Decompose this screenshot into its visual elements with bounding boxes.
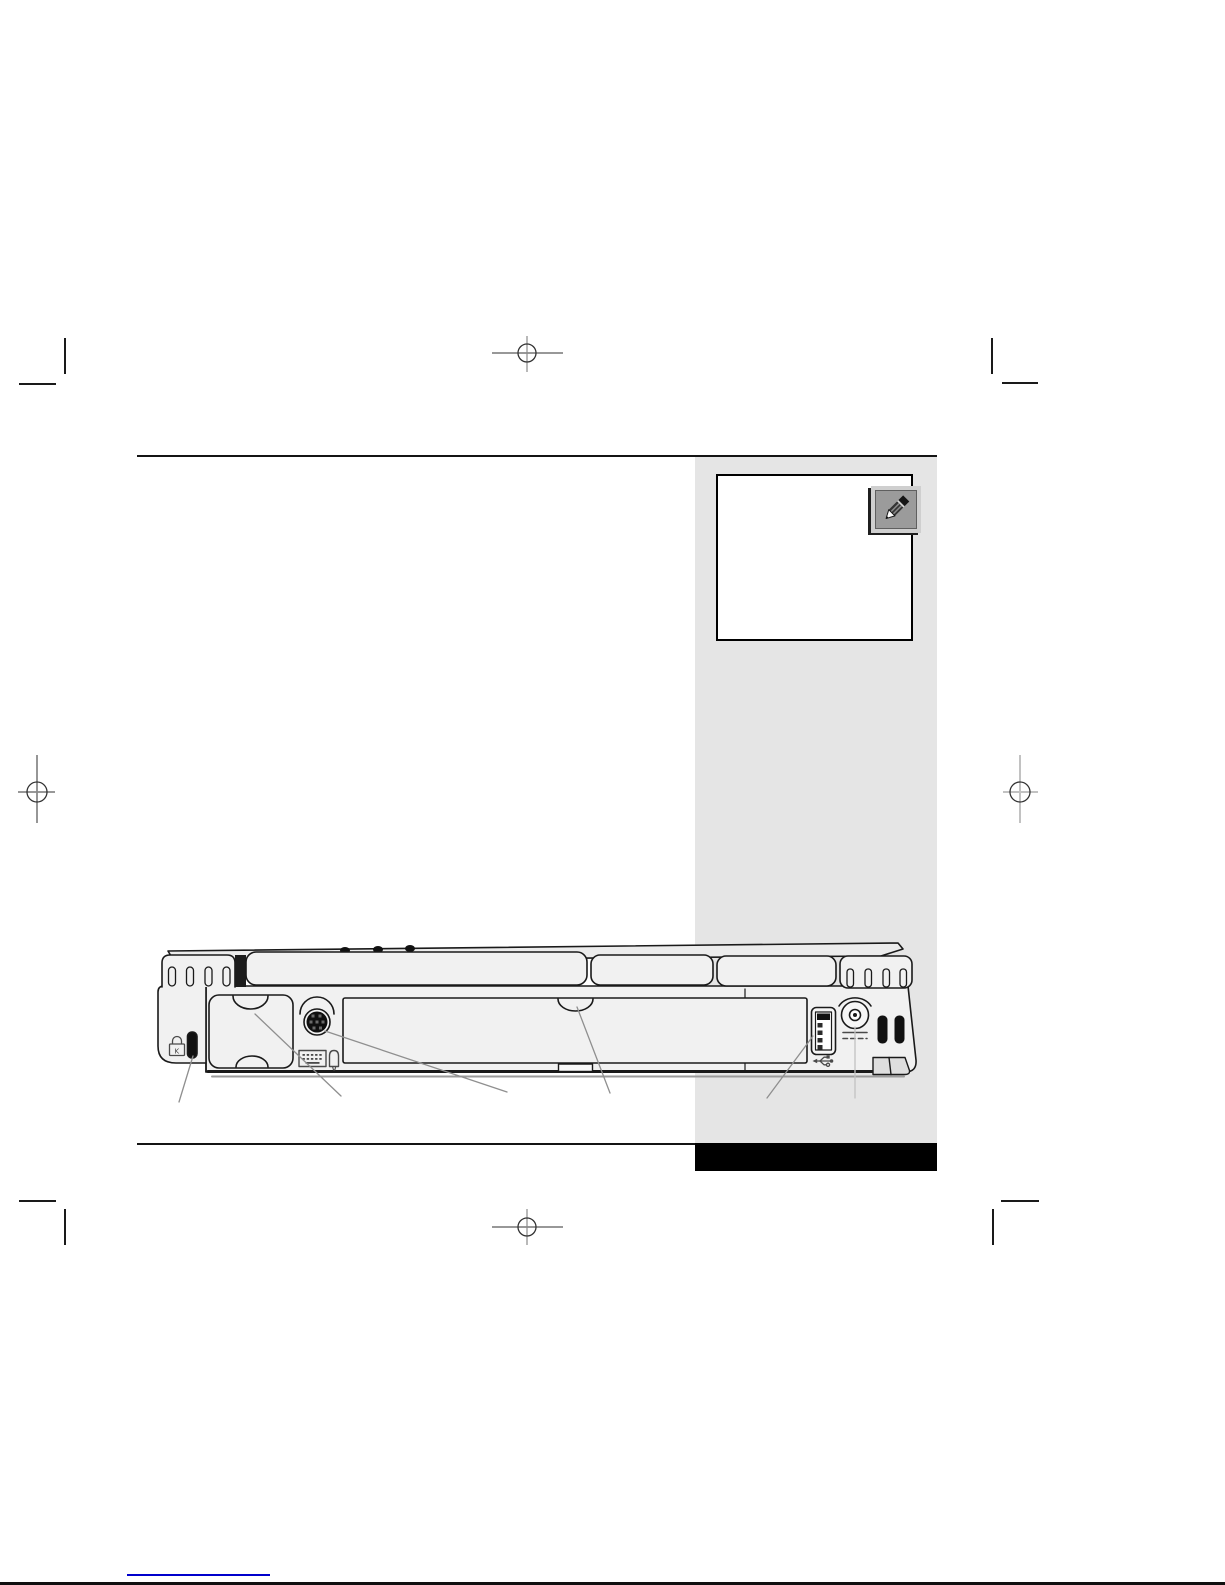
hinge-post [235,955,246,987]
hinge-left [162,955,235,987]
rear-panel-left-cap [158,986,206,1063]
pencil-glyph [877,492,915,527]
kensington-lock-slot [188,1032,198,1058]
kensington-lock-icon [170,1037,185,1056]
registration-mark-bottom-center [492,1209,563,1245]
left-port-cover [209,995,293,1068]
crop-mark-top-left [19,338,65,384]
pencil-icon [871,486,921,533]
pencil-icon-panel [875,490,917,529]
lid-dots [340,945,415,954]
leader-kensington [179,1056,193,1102]
cover-latch [559,1064,593,1072]
registration-mark-left-middle [18,755,55,823]
back-module-left [246,952,587,985]
leader-port-cover [255,1014,341,1096]
ps2-mouse-icon [330,1051,339,1071]
hinge-left-ridges [169,967,231,986]
crop-mark-top-right [992,338,1038,383]
crop-mark-bottom-right [993,1201,1039,1245]
registration-mark-right-middle [1003,755,1038,823]
leader-ps2 [325,1031,507,1092]
footer-black-bar [695,1143,937,1171]
ps2-keyboard-icon [299,1051,326,1067]
top-rule [137,455,937,457]
manual-page: { "page": {"width": 1225, "height": 1585… [0,0,1225,1585]
bottom-rule [137,1143,695,1145]
registration-mark-top-center [492,336,563,372]
crop-mark-bottom-left [19,1201,65,1245]
ps2-keyboard-mouse-port [300,997,334,1035]
footer-link-underline[interactable] [127,1574,270,1576]
page-artwork: K [0,0,1225,1585]
kensington-letter: K [175,1048,180,1056]
leader-expansion-cover [577,1007,610,1093]
